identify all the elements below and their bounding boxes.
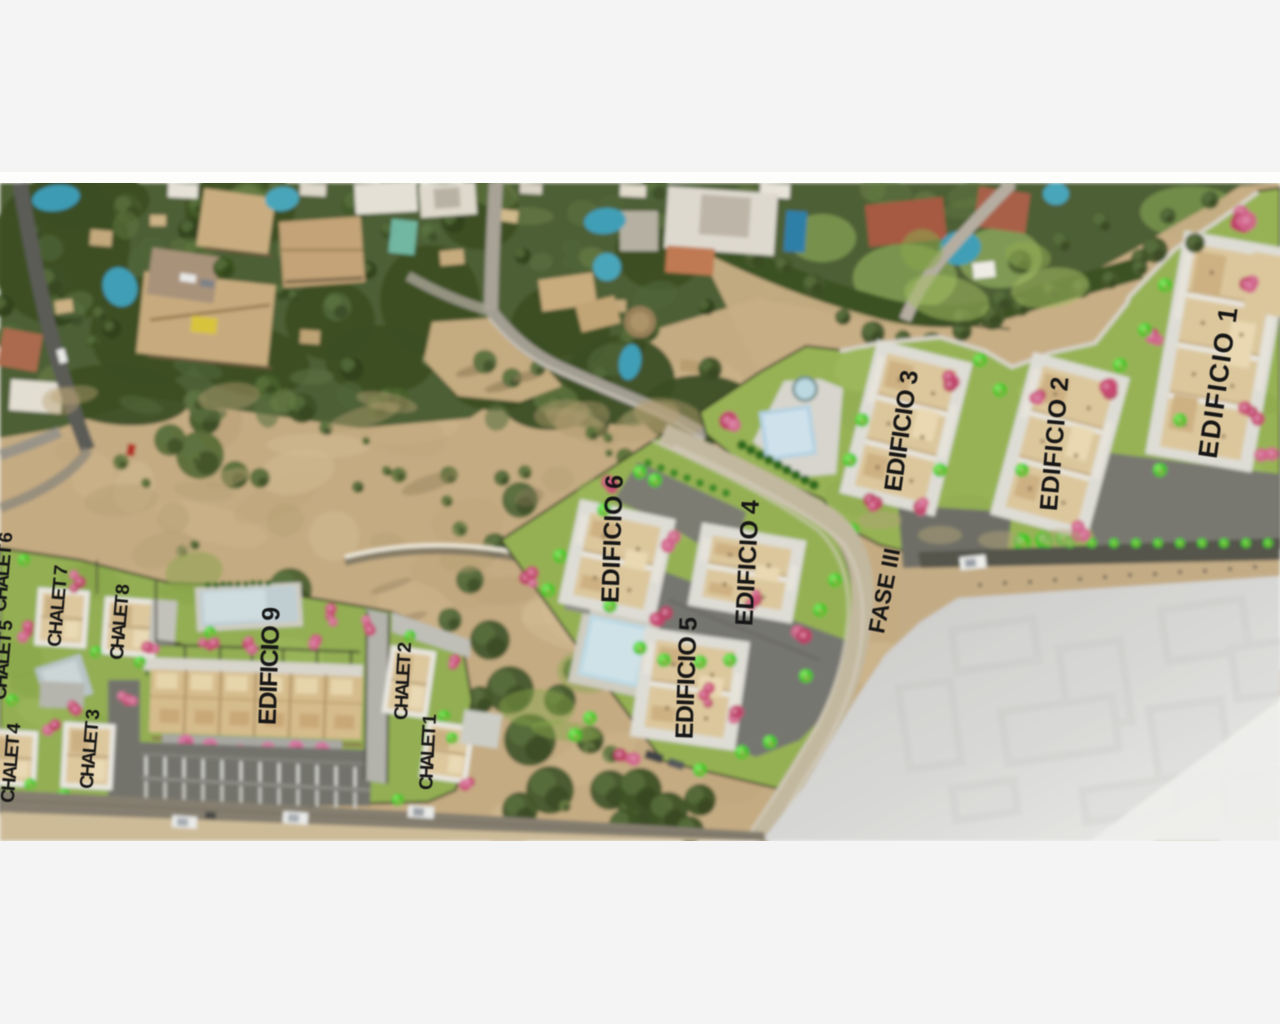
svg-text:CHALET 1: CHALET 1	[416, 713, 441, 790]
svg-text:EDIFICIO 9: EDIFICIO 9	[254, 606, 286, 725]
svg-text:EDIFICIO 5: EDIFICIO 5	[670, 616, 702, 739]
svg-text:CHALET 2: CHALET 2	[391, 641, 416, 720]
svg-text:EDIFICIO 6: EDIFICIO 6	[596, 475, 628, 604]
